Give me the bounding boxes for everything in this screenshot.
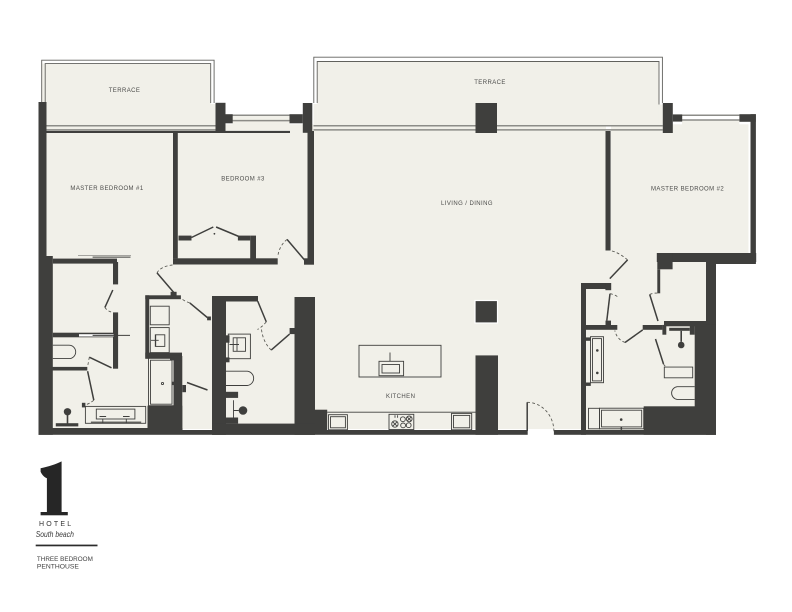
svg-text:KITCHEN: KITCHEN <box>386 394 415 400</box>
svg-text:LIVING / DINING: LIVING / DINING <box>441 201 493 207</box>
svg-text:MASTER BEDROOM #2: MASTER BEDROOM #2 <box>651 187 724 193</box>
svg-text:PENTHOUSE: PENTHOUSE <box>37 563 79 570</box>
svg-text:South beach: South beach <box>36 530 74 539</box>
svg-text:TERRACE: TERRACE <box>109 88 141 94</box>
svg-text:THREE BEDROOM: THREE BEDROOM <box>37 556 93 563</box>
svg-text:TERRACE: TERRACE <box>474 80 506 86</box>
svg-text:BEDROOM #3: BEDROOM #3 <box>221 177 265 183</box>
svg-text:MASTER BEDROOM #1: MASTER BEDROOM #1 <box>70 186 143 192</box>
svg-text:HOTEL: HOTEL <box>39 521 73 528</box>
